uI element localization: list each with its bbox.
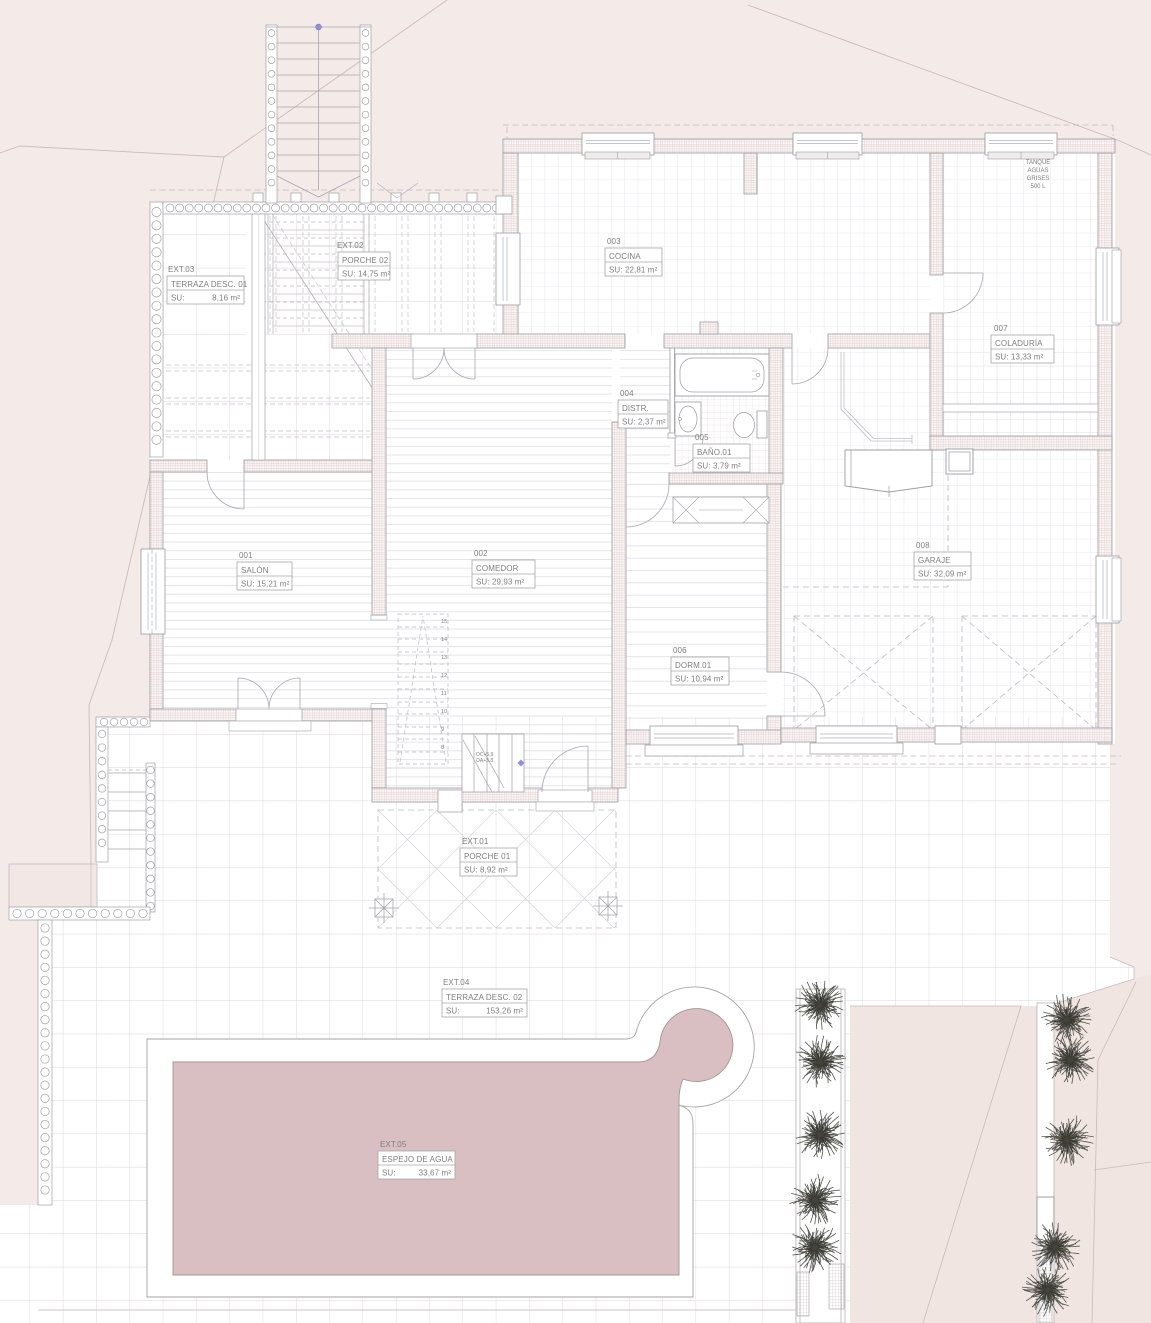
svg-text:TANQUE: TANQUE — [1026, 160, 1051, 166]
svg-text:SU:: SU: — [382, 1169, 396, 1178]
svg-text:SU: 29,93 m²: SU: 29,93 m² — [476, 578, 525, 587]
svg-text:8: 8 — [441, 745, 444, 751]
svg-text:EXT.04: EXT.04 — [443, 978, 470, 987]
svg-text:OA+3,8: OA+3,8 — [476, 758, 493, 764]
svg-text:GRISES: GRISES — [1027, 176, 1050, 182]
svg-text:13: 13 — [441, 655, 447, 661]
svg-text:GARAJE: GARAJE — [918, 556, 951, 565]
svg-text:SU: 3,79 m²: SU: 3,79 m² — [697, 462, 741, 471]
svg-text:SU: 32,09 m²: SU: 32,09 m² — [918, 570, 967, 579]
svg-text:15: 15 — [441, 619, 447, 625]
svg-text:001: 001 — [239, 551, 253, 560]
svg-text:EXT.02: EXT.02 — [337, 241, 364, 250]
svg-text:TERRAZA DESC. 02: TERRAZA DESC. 02 — [446, 993, 523, 1002]
svg-text:COCINA: COCINA — [609, 252, 641, 261]
svg-text:SU: 8,92 m²: SU: 8,92 m² — [464, 866, 508, 875]
svg-text:AGUAS: AGUAS — [1027, 168, 1048, 174]
svg-text:COMEDOR: COMEDOR — [476, 564, 519, 573]
svg-text:SU: 10,94 m²: SU: 10,94 m² — [675, 675, 724, 684]
svg-text:EXT.05: EXT.05 — [380, 1140, 407, 1149]
svg-text:DISTR.: DISTR. — [622, 404, 649, 413]
svg-text:SU: 2,37 m²: SU: 2,37 m² — [622, 418, 666, 427]
svg-text:TERRAZA DESC. 01: TERRAZA DESC. 01 — [171, 280, 248, 289]
svg-text:006: 006 — [673, 646, 687, 655]
svg-text:DORM.01: DORM.01 — [675, 661, 712, 670]
svg-text:EXT.03: EXT.03 — [168, 265, 195, 274]
svg-text:ESPEJO DE AGUA: ESPEJO DE AGUA — [382, 1155, 453, 1164]
svg-text:008: 008 — [916, 541, 930, 550]
svg-text:EXT.01: EXT.01 — [462, 837, 489, 846]
svg-text:8,16 m²: 8,16 m² — [212, 294, 240, 303]
svg-text:005: 005 — [695, 433, 709, 442]
svg-text:500 L: 500 L — [1030, 184, 1046, 190]
svg-text:SU: 22,81 m²: SU: 22,81 m² — [609, 266, 658, 275]
svg-text:SU: 13,33 m²: SU: 13,33 m² — [995, 353, 1044, 362]
svg-text:SALÓN: SALÓN — [241, 566, 269, 575]
svg-text:SU:: SU: — [171, 294, 185, 303]
svg-text:COLADURÍA: COLADURÍA — [995, 339, 1043, 348]
svg-text:SU:: SU: — [446, 1007, 460, 1016]
svg-text:12: 12 — [441, 673, 447, 679]
svg-text:153,26 m²: 153,26 m² — [486, 1007, 523, 1016]
svg-text:SU: 14,75 m²: SU: 14,75 m² — [342, 270, 391, 279]
svg-text:SU: 15,21 m²: SU: 15,21 m² — [241, 580, 290, 589]
svg-text:14: 14 — [441, 637, 447, 643]
svg-text:BAÑO.01: BAÑO.01 — [697, 448, 732, 457]
svg-text:PORCHE 01: PORCHE 01 — [464, 852, 511, 861]
svg-text:004: 004 — [620, 389, 634, 398]
svg-text:9: 9 — [441, 727, 444, 733]
svg-text:PORCHE 02: PORCHE 02 — [342, 256, 389, 265]
svg-text:33,67 m²: 33,67 m² — [419, 1169, 452, 1178]
svg-text:10: 10 — [441, 709, 447, 715]
svg-text:002: 002 — [474, 549, 488, 558]
svg-text:11: 11 — [441, 691, 447, 697]
svg-text:003: 003 — [607, 237, 621, 246]
svg-text:007: 007 — [994, 324, 1008, 333]
